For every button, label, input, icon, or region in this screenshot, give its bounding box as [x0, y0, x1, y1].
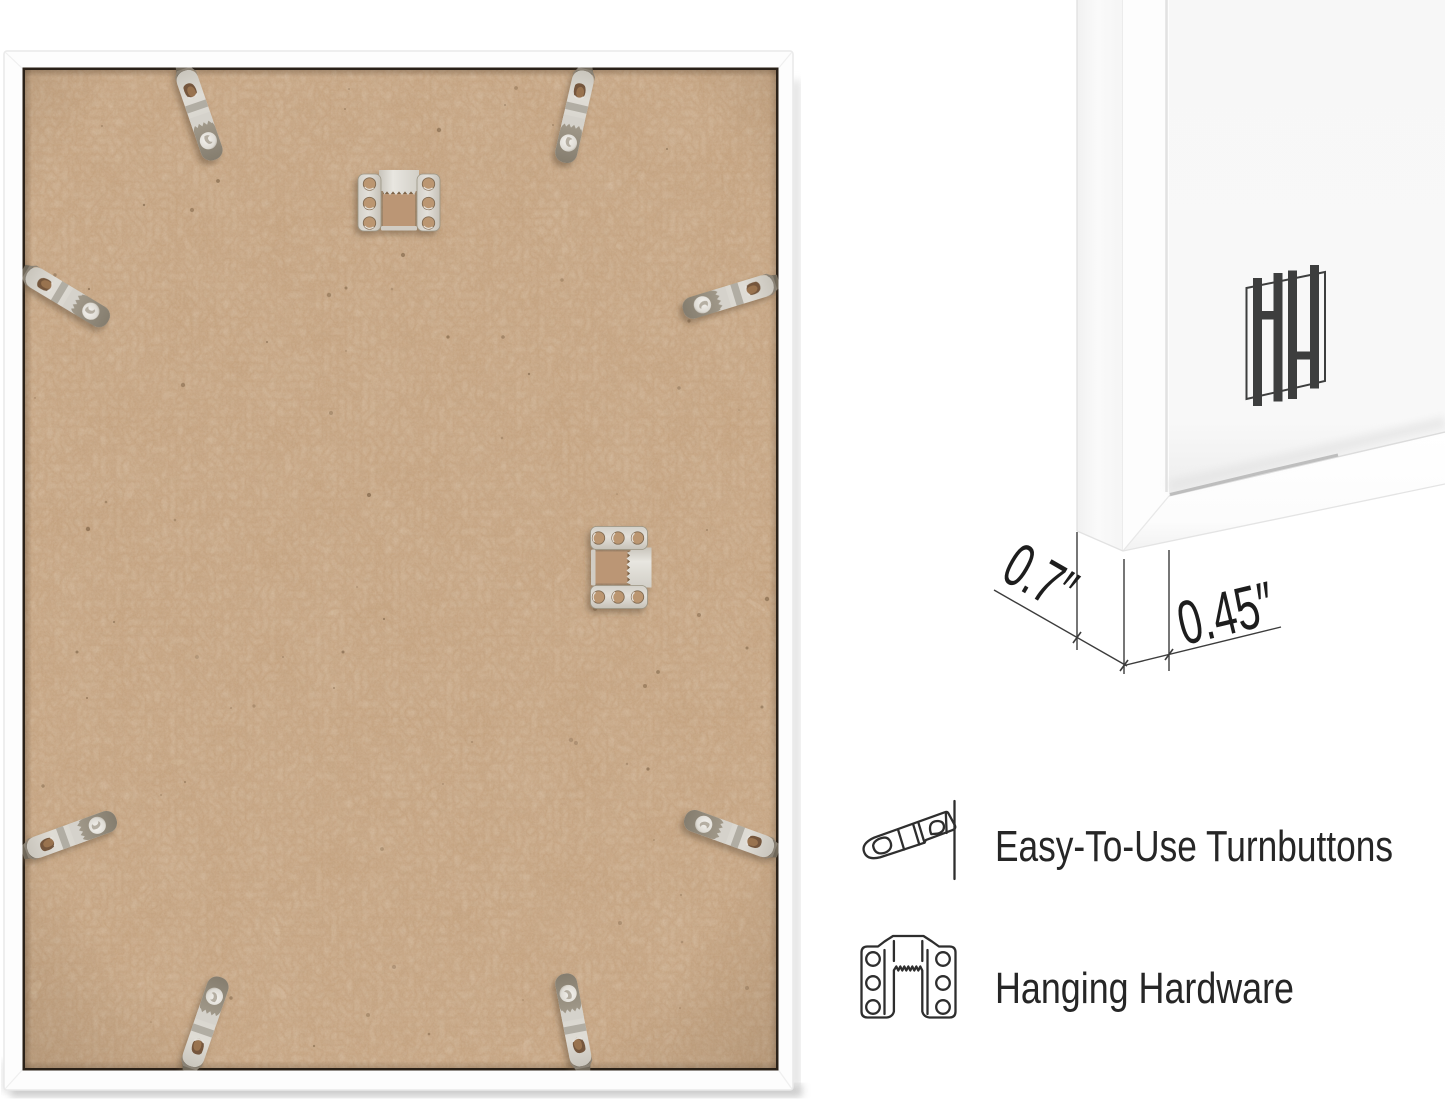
svg-text:0.7″: 0.7″	[992, 530, 1089, 626]
svg-text:0.45″: 0.45″	[1171, 569, 1281, 659]
svg-text:Easy-To-Use Turnbuttons: Easy-To-Use Turnbuttons	[995, 823, 1393, 871]
svg-text:Hanging Hardware: Hanging Hardware	[995, 965, 1294, 1013]
